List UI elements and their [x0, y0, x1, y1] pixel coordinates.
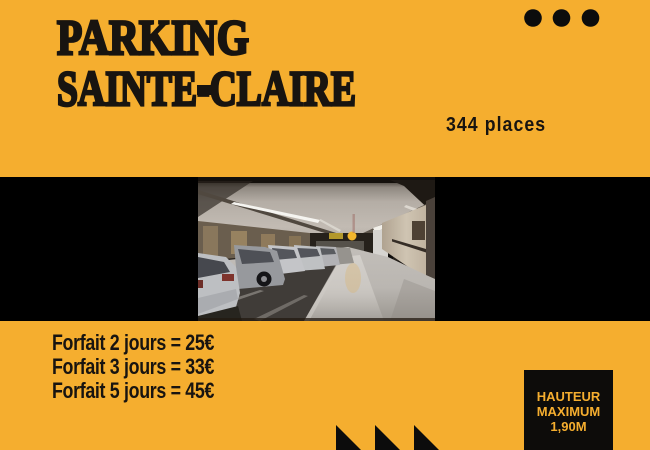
svg-text:PARKING: PARKING: [57, 9, 249, 65]
